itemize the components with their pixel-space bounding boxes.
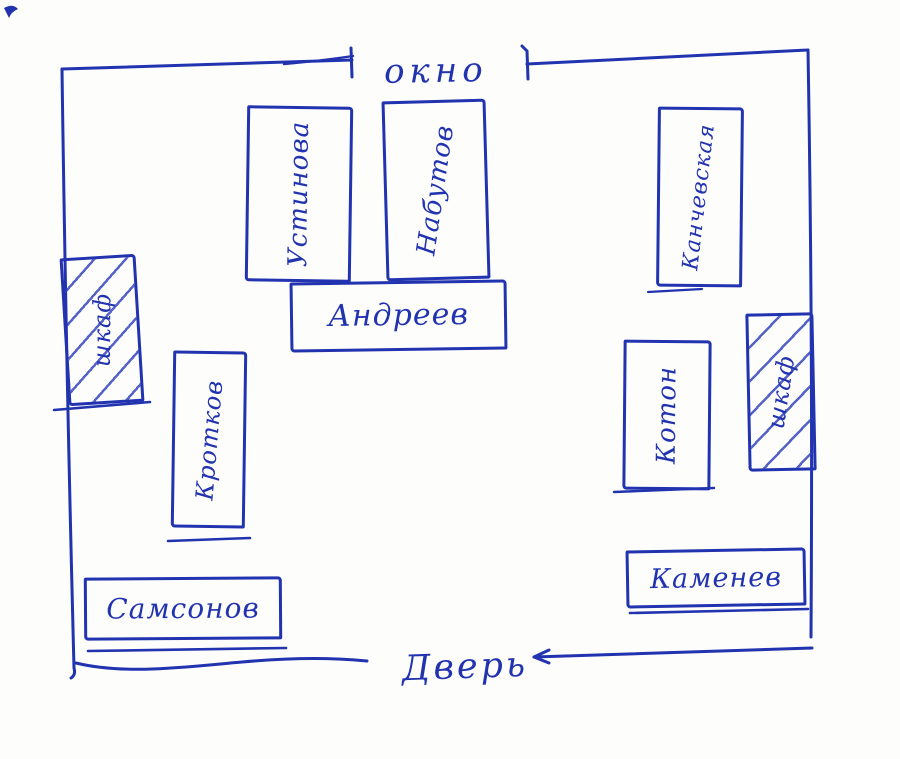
wall-bottom-right <box>534 648 812 657</box>
wardrobe-right-label: шкаф <box>763 354 798 431</box>
scanned-room-plan: окно Дверь Устинова Набутов Андреев Канч… <box>0 0 900 759</box>
wardrobe-left: шкаф <box>60 254 145 406</box>
desk-ustinova-label: Устинова <box>285 121 313 268</box>
desk-kanchevskaya-label: Канчевская <box>681 123 720 272</box>
desk-koton: Котон <box>622 340 711 491</box>
door-label: Дверь <box>401 648 528 687</box>
window-tick-right <box>522 46 528 79</box>
desk-ustinova: Устинова <box>245 105 353 282</box>
door-arrowhead <box>534 650 549 663</box>
wall-top-right <box>527 50 808 64</box>
underline-kamenev <box>630 609 808 613</box>
desk-krotkov-label: Кротков <box>192 378 226 500</box>
desk-samsonov: Самсонов <box>84 576 282 640</box>
desk-kanchevskaya: Канчевская <box>656 107 744 288</box>
desk-kamenev: Каменев <box>626 547 807 608</box>
underline-samsonov <box>88 648 286 651</box>
window-label: окно <box>384 53 488 89</box>
desk-kamenev-label: Каменев <box>650 563 782 592</box>
corner-artifact <box>4 6 18 18</box>
wardrobe-left-label: шкаф <box>90 293 115 367</box>
wall-top-left <box>62 60 352 69</box>
overshoot-kanchevskaya <box>648 289 702 292</box>
underline-krotkov <box>168 538 250 541</box>
desk-nabutov: Набутов <box>382 99 491 282</box>
window-tick-left <box>351 48 352 77</box>
desk-andreev: Андреев <box>290 279 508 352</box>
desk-nabutov-label: Набутов <box>414 123 459 257</box>
desk-samsonov-label: Самсонов <box>106 594 260 623</box>
wall-bottom-left <box>76 659 367 670</box>
desk-krotkov: Кротков <box>171 350 247 528</box>
desk-koton-label: Котон <box>654 366 681 464</box>
wardrobe-right: шкаф <box>745 312 816 471</box>
wall-top-left-overdraw <box>284 56 353 64</box>
desk-andreev-label: Андреев <box>328 300 469 332</box>
